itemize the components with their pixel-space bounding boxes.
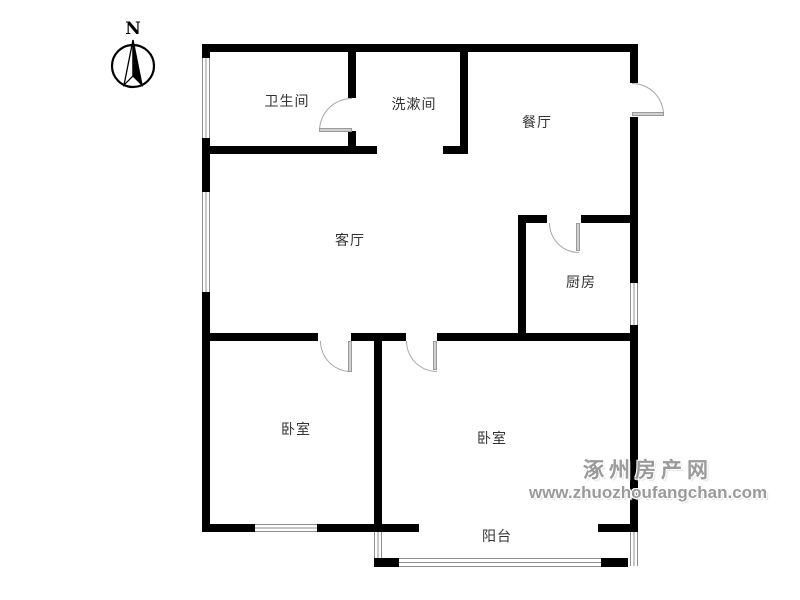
window-balcony-right bbox=[630, 532, 638, 566]
wall-bedroom-bottom-a bbox=[202, 524, 255, 532]
wall-bath-divider-b bbox=[348, 131, 356, 146]
window-balcony-left bbox=[374, 532, 382, 558]
wall-living-bottom-b bbox=[351, 333, 406, 341]
compass-north-label: N bbox=[125, 19, 141, 39]
wall-bath-divider-a bbox=[348, 52, 356, 98]
door-panel-entry bbox=[632, 112, 664, 116]
room-label-balcony: 阳台 bbox=[482, 526, 512, 546]
window-bedroom-bottom bbox=[255, 524, 317, 532]
watermark: 涿州房产网 www.zhuozhoufangchan.com bbox=[503, 459, 793, 503]
wall-balcony-corner-left bbox=[374, 558, 399, 567]
door-panel-kitchen bbox=[576, 223, 580, 251]
room-label-kitchen: 厨房 bbox=[566, 272, 596, 292]
wall-top bbox=[202, 44, 638, 52]
room-label-bedroom-right: 卧室 bbox=[477, 428, 507, 448]
room-label-bathroom: 卫生间 bbox=[265, 91, 310, 111]
door-panel-bathroom bbox=[319, 128, 352, 132]
wall-left-c bbox=[202, 292, 210, 532]
wall-bath-bottom bbox=[202, 146, 377, 154]
wall-kitchen-top-b bbox=[581, 215, 638, 223]
room-label-washroom: 洗漱间 bbox=[392, 94, 437, 114]
compass-north-indicator: N bbox=[105, 18, 161, 90]
room-label-living: 客厅 bbox=[335, 230, 365, 250]
wall-living-bottom-c bbox=[437, 333, 638, 341]
wall-balcony-cap-right bbox=[601, 558, 628, 567]
floorplan-canvas: 卫生间洗漱间餐厅客厅厨房卧室卧室阳台 bbox=[0, 0, 800, 600]
door-panel-bedroom-right bbox=[433, 341, 437, 370]
door-arc-kitchen bbox=[549, 223, 579, 253]
wall-kitchen-left bbox=[518, 223, 526, 333]
wall-living-bottom-a bbox=[202, 333, 318, 341]
compass-icon: N bbox=[105, 18, 161, 90]
window-balcony-bottom bbox=[399, 558, 601, 567]
wall-right-b bbox=[630, 117, 638, 283]
door-arc-bedroom-left bbox=[320, 341, 351, 372]
floorplan-image: 卫生间洗漱间餐厅客厅厨房卧室卧室阳台 N 涿州房产网 www.zhuozhouf… bbox=[0, 0, 800, 600]
door-arc-entry bbox=[632, 83, 664, 115]
wall-bedroom-divider bbox=[374, 341, 382, 524]
wall-right-a bbox=[630, 44, 638, 83]
watermark-site-name: 涿州房产网 bbox=[503, 459, 793, 483]
door-panel-bedroom-left bbox=[348, 341, 352, 372]
window-kitchen-right bbox=[630, 283, 638, 325]
wall-washroom-foot bbox=[443, 146, 468, 154]
door-arc-bathroom bbox=[319, 98, 352, 131]
room-label-dining: 餐厅 bbox=[522, 112, 552, 132]
wall-washroom-right bbox=[460, 52, 468, 146]
wall-left-a bbox=[202, 44, 210, 58]
wall-bedroom-bottom-b bbox=[317, 524, 419, 532]
window-left-living bbox=[202, 192, 210, 292]
wall-kitchen-top-a bbox=[518, 215, 547, 223]
room-label-bedroom-left: 卧室 bbox=[281, 419, 311, 439]
window-left-upper bbox=[202, 58, 210, 138]
wall-bedroom-bottom-c bbox=[598, 524, 638, 532]
watermark-site-url: www.zhuozhoufangchan.com bbox=[503, 483, 793, 503]
